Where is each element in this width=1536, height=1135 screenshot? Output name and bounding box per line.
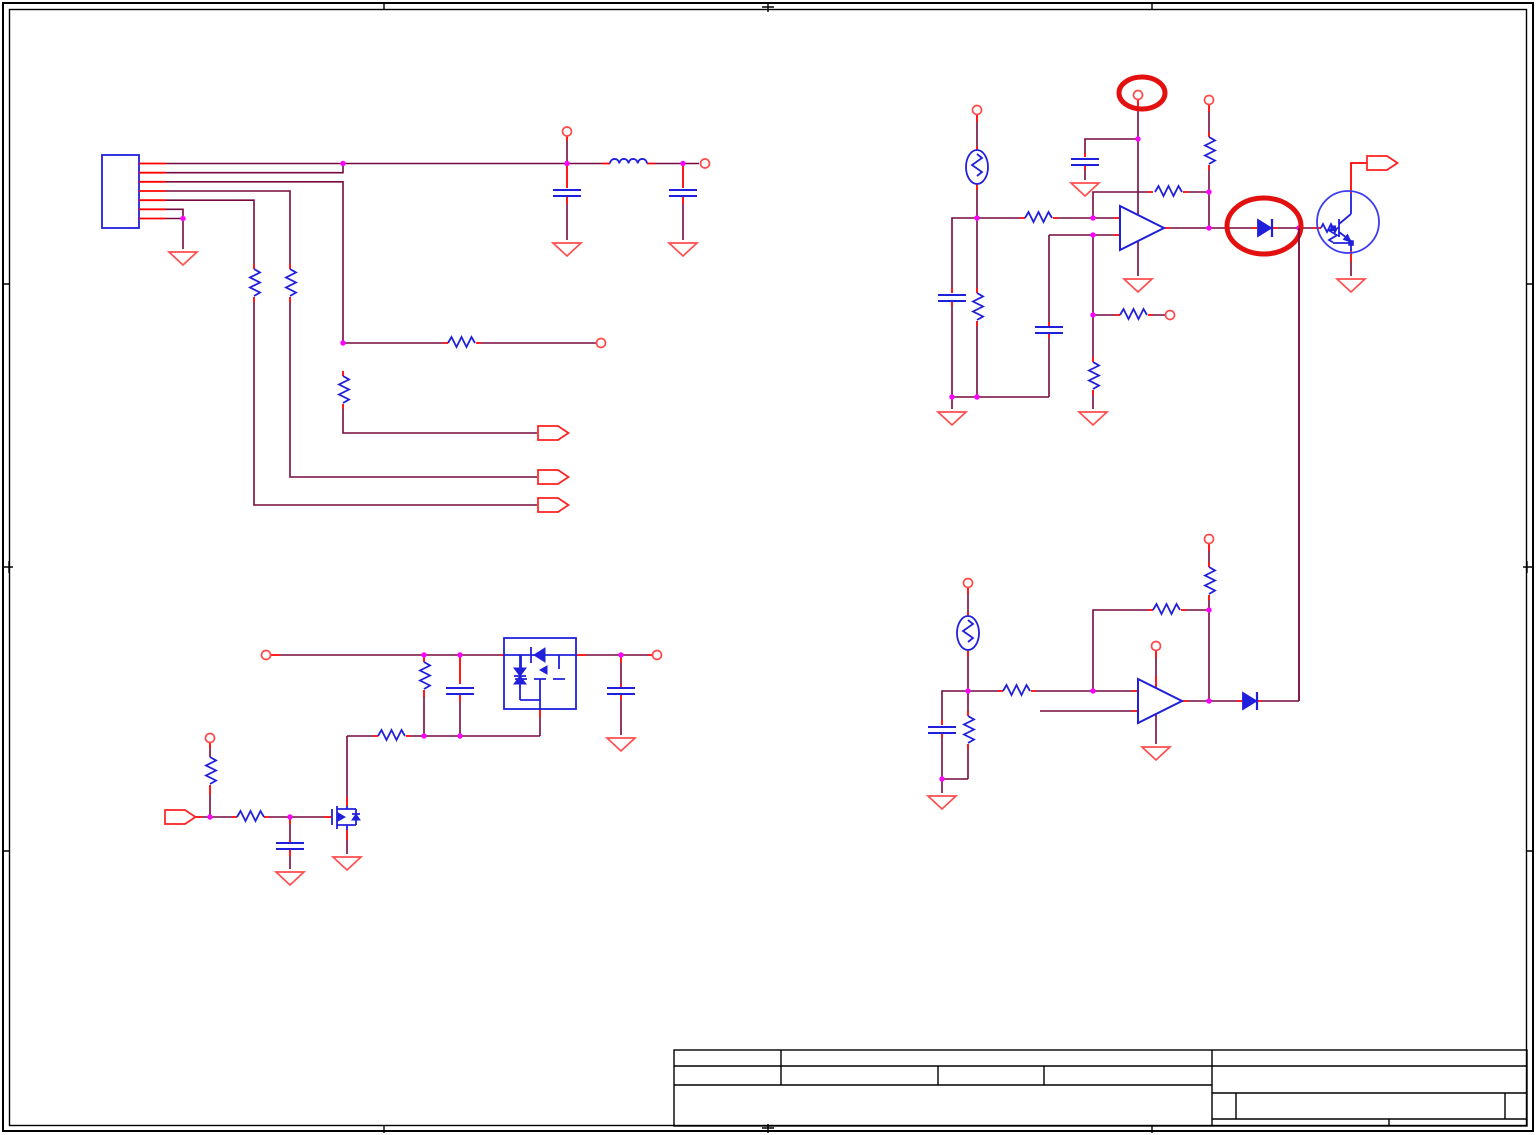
- resistor: [1120, 309, 1147, 319]
- resistor: [1025, 212, 1052, 222]
- offpage-connector-icon: [538, 470, 569, 484]
- offpage-connector-icon: [538, 426, 569, 440]
- series-diode: [1258, 219, 1272, 237]
- output-capacitor: [607, 688, 635, 694]
- resistor: [1003, 685, 1030, 695]
- opamp-comparator: [1138, 679, 1182, 723]
- ground-icon: [1337, 279, 1365, 292]
- ground-icon: [553, 243, 581, 256]
- pullup-resistor: [206, 757, 216, 784]
- port-icon: [653, 651, 662, 660]
- resistor: [339, 376, 349, 403]
- nfet-transistor: [332, 806, 360, 830]
- sheet-border-frame: [2, 2, 1534, 1133]
- series-diode: [1243, 692, 1257, 710]
- pfet-load-switch-package: [504, 638, 576, 709]
- port-icon: [1166, 311, 1175, 320]
- thermistor: [957, 616, 979, 650]
- port-icon: [701, 159, 710, 168]
- ground-icon: [669, 243, 697, 256]
- connector-pins: [139, 136, 683, 409]
- zone-ticks: [2, 2, 1534, 1133]
- schematic-sheet: [0, 0, 1536, 1135]
- capacitor: [446, 688, 474, 694]
- resistor: [250, 269, 260, 296]
- resistor: [964, 716, 974, 743]
- capacitor: [276, 843, 304, 849]
- connector-wires: [166, 141, 699, 505]
- port-icon: [563, 127, 572, 136]
- body-diode: [534, 648, 545, 662]
- resistor: [973, 293, 983, 320]
- ground-icon: [1124, 279, 1152, 292]
- ground-icon: [1079, 412, 1107, 425]
- ground-icon: [169, 252, 197, 265]
- ground-icon: [333, 857, 361, 870]
- mosfet-arrow: [338, 813, 345, 821]
- load-switch-circuit: [165, 638, 662, 885]
- digital-transistor: [1317, 191, 1379, 253]
- ground-icon: [607, 738, 635, 751]
- connector-body: [102, 155, 139, 228]
- inductor: [610, 159, 647, 164]
- gate-zener: [514, 676, 526, 684]
- resistor: [1089, 362, 1099, 389]
- power-port-icon: [1134, 91, 1143, 100]
- channel-arrow: [540, 666, 547, 674]
- offpage-connector-icon: [165, 810, 196, 824]
- capacitor: [553, 190, 581, 196]
- ground-icon: [928, 796, 956, 809]
- capacitor: [938, 295, 966, 301]
- connector-filter-circuit: [102, 127, 710, 512]
- gate-resistor: [378, 730, 405, 740]
- feedback-resistor: [1153, 604, 1180, 614]
- port-icon: [964, 579, 973, 588]
- feedback-resistor: [1155, 186, 1182, 196]
- capacitor: [928, 727, 956, 733]
- gate-zener: [514, 668, 526, 676]
- thermistor: [966, 150, 988, 184]
- port-icon: [973, 106, 982, 115]
- port-icon: [206, 734, 215, 743]
- ground-icon: [276, 872, 304, 885]
- ground-icon: [1142, 747, 1170, 760]
- offpage-connector-icon: [538, 498, 569, 512]
- port-icon: [262, 651, 271, 660]
- schematic-canvas: [0, 0, 1536, 1135]
- resistor: [448, 337, 475, 347]
- capacitor: [669, 190, 697, 196]
- decoupling-capacitor: [1071, 159, 1099, 165]
- title-block-outline: [674, 1050, 1527, 1126]
- resistor: [286, 269, 296, 296]
- pullup-resistor: [1205, 137, 1215, 164]
- port-icon: [1205, 535, 1214, 544]
- capacitor: [1035, 327, 1063, 333]
- resistor: [420, 662, 430, 689]
- series-resistor: [237, 811, 264, 821]
- power-port-icon: [1152, 642, 1161, 651]
- ground-icon: [1071, 183, 1099, 196]
- port-icon: [597, 339, 606, 348]
- offpage-connector-icon: [1367, 156, 1398, 170]
- title-block: [674, 1050, 1527, 1126]
- ground-icon: [938, 412, 966, 425]
- port-icon: [1205, 96, 1214, 105]
- opamp-comparator: [1120, 206, 1164, 250]
- pullup-resistor: [1205, 567, 1215, 594]
